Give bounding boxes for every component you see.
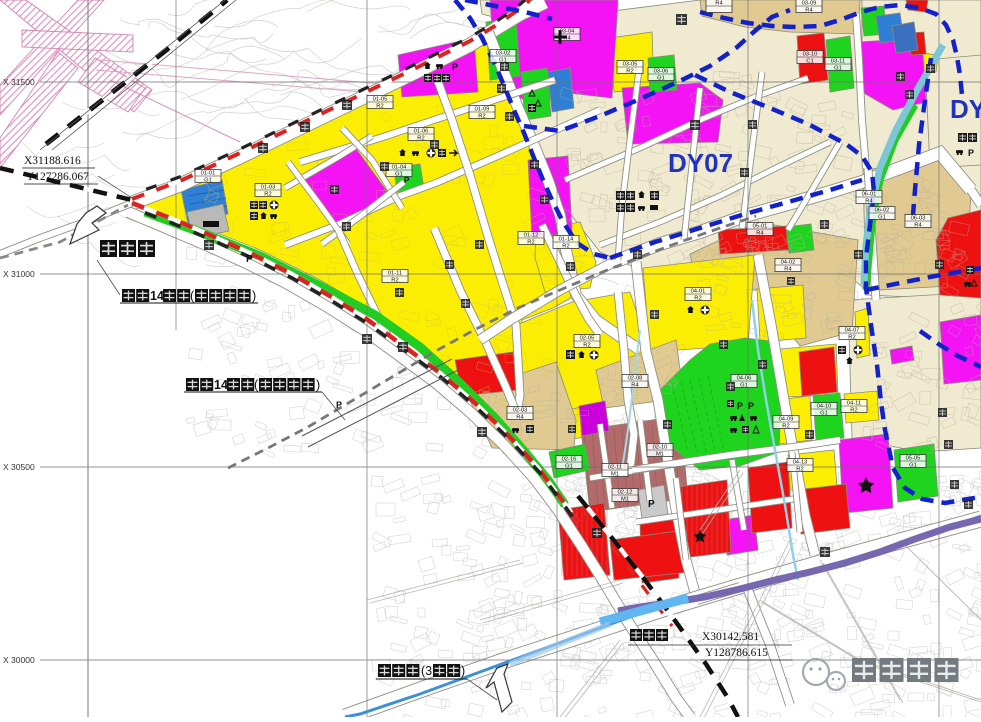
svg-text:03-06: 03-06 <box>654 69 669 75</box>
svg-text:G1: G1 <box>909 462 917 468</box>
svg-text:01-03: 01-03 <box>261 185 276 191</box>
svg-text:): ) <box>461 664 465 678</box>
svg-text:P: P <box>246 254 253 265</box>
svg-text:G1: G1 <box>565 463 573 469</box>
svg-text:14: 14 <box>150 289 164 303</box>
svg-text:P: P <box>748 401 754 411</box>
svg-text:P: P <box>737 401 743 411</box>
svg-text:04-07: 04-07 <box>845 328 860 334</box>
svg-text:R4: R4 <box>756 230 764 236</box>
svg-text:X 31000: X 31000 <box>3 269 35 279</box>
svg-text:R2: R2 <box>694 295 701 301</box>
svg-text:03-10: 03-10 <box>803 52 818 58</box>
svg-text:06-01: 06-01 <box>862 192 877 198</box>
svg-text:03-05: 03-05 <box>623 62 638 68</box>
svg-text:02-10: 02-10 <box>653 445 668 451</box>
svg-text:03-11: 03-11 <box>831 59 845 65</box>
svg-text:04-13: 04-13 <box>793 460 808 466</box>
svg-text:02-16: 02-16 <box>562 457 577 463</box>
svg-text:X 31500: X 31500 <box>3 77 35 87</box>
svg-text:G1: G1 <box>657 75 665 81</box>
svg-text:01-05: 01-05 <box>373 97 388 103</box>
svg-text:R2: R2 <box>782 423 789 429</box>
svg-text:R4: R4 <box>914 222 922 228</box>
svg-text:R4: R4 <box>631 382 639 388</box>
svg-text:14: 14 <box>214 378 228 392</box>
svg-text:M1: M1 <box>611 471 619 477</box>
svg-text:C1: C1 <box>806 58 813 64</box>
svg-text:R2: R2 <box>562 243 569 249</box>
svg-text:): ) <box>252 289 256 303</box>
svg-text:R2: R2 <box>264 191 271 197</box>
svg-text:02-12: 02-12 <box>618 490 633 496</box>
svg-text:R2: R2 <box>376 103 383 109</box>
svg-text:P: P <box>452 62 458 72</box>
svg-text:R4: R4 <box>805 7 813 13</box>
svg-text:02-05: 02-05 <box>580 336 595 342</box>
svg-text:G1: G1 <box>820 410 828 416</box>
svg-text:04-09: 04-09 <box>779 417 794 423</box>
svg-text:01-04: 01-04 <box>392 165 408 171</box>
svg-text:X30142.581: X30142.581 <box>702 631 759 643</box>
svg-text:R2: R2 <box>478 113 485 119</box>
svg-text:02-08: 02-08 <box>628 376 643 382</box>
svg-text:R2: R2 <box>796 466 803 472</box>
svg-text:01-09: 01-09 <box>475 107 490 113</box>
svg-text:): ) <box>316 378 320 392</box>
svg-text:DY07: DY07 <box>668 148 733 178</box>
svg-text:02-03: 02-03 <box>513 408 528 414</box>
svg-text:G1: G1 <box>204 177 212 183</box>
svg-text:X 30000: X 30000 <box>3 655 35 665</box>
svg-text:G1: G1 <box>740 382 748 388</box>
svg-text:02-11: 02-11 <box>608 465 622 471</box>
svg-text:03-09: 03-09 <box>802 1 817 7</box>
svg-text:R4: R4 <box>715 1 723 7</box>
svg-text:P: P <box>648 499 655 510</box>
svg-text:R2: R2 <box>626 68 633 74</box>
svg-text:R2: R2 <box>583 342 590 348</box>
svg-text:01-14: 01-14 <box>559 237 575 243</box>
svg-text:06-03: 06-03 <box>911 216 926 222</box>
svg-text:X31188.616: X31188.616 <box>24 155 81 167</box>
svg-text:04-06: 04-06 <box>737 376 752 382</box>
svg-text:04-02: 04-02 <box>781 260 796 266</box>
svg-text:R2: R2 <box>848 334 855 340</box>
svg-text:R4: R4 <box>865 198 873 204</box>
svg-text:R2: R2 <box>527 239 534 245</box>
svg-text:R2: R2 <box>391 277 398 283</box>
svg-text:05-01: 05-01 <box>753 224 768 230</box>
svg-text:01-12: 01-12 <box>524 233 539 239</box>
svg-text:06-02: 06-02 <box>875 208 890 214</box>
svg-text:04-11: 04-11 <box>847 401 861 407</box>
svg-text:R4: R4 <box>516 414 524 420</box>
svg-text:Y127286.067: Y127286.067 <box>26 171 89 183</box>
svg-text:M1: M1 <box>656 451 664 457</box>
svg-text:01-06: 01-06 <box>414 129 429 135</box>
svg-text:(3: (3 <box>421 664 432 678</box>
svg-text:P: P <box>404 176 410 185</box>
svg-text:M1: M1 <box>621 496 629 502</box>
svg-text:P: P <box>336 400 342 410</box>
svg-text:01-01: 01-01 <box>201 171 216 177</box>
svg-text:03-02: 03-02 <box>496 51 511 57</box>
svg-text:R2: R2 <box>850 407 857 413</box>
svg-text:03-04: 03-04 <box>560 29 576 35</box>
svg-text:04-10: 04-10 <box>817 404 832 410</box>
svg-text:G1: G1 <box>834 65 842 71</box>
svg-text:G1: G1 <box>395 171 403 177</box>
svg-text:04-01: 04-01 <box>691 289 706 295</box>
svg-text:DY: DY <box>950 94 981 124</box>
svg-text:P: P <box>968 148 974 158</box>
svg-text:05-05: 05-05 <box>906 456 921 462</box>
svg-text:X 30500: X 30500 <box>3 462 35 472</box>
svg-text:G1: G1 <box>878 214 886 220</box>
svg-text:Y128786.615: Y128786.615 <box>705 647 768 659</box>
svg-text:R4: R4 <box>784 266 792 272</box>
svg-text:R2: R2 <box>417 135 424 141</box>
svg-text:01-11: 01-11 <box>388 271 402 277</box>
